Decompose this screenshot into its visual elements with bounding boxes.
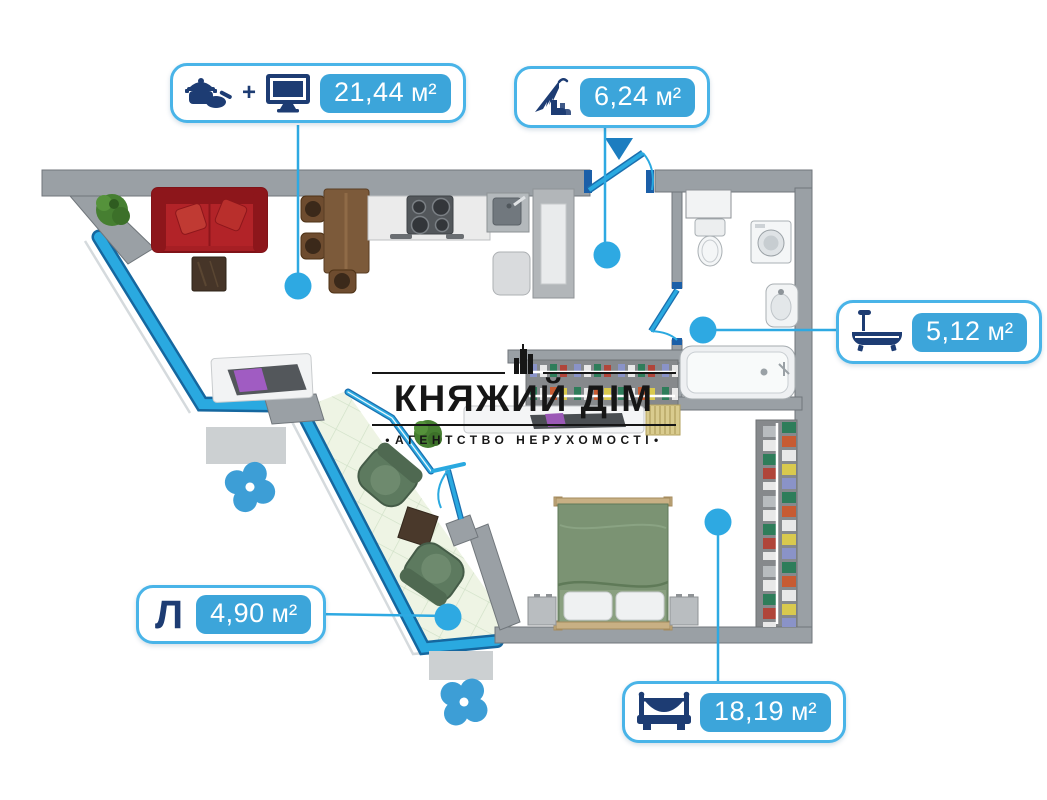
coffee-table: [192, 257, 226, 291]
dining-set: [301, 189, 369, 293]
umbrella-boots-icon: [529, 76, 571, 118]
label-bathroom: 5,12 м²: [836, 300, 1042, 364]
label-hallway: 6,24 м²: [514, 66, 710, 128]
area-unit: м²: [272, 602, 298, 627]
kitchen-counter: [368, 196, 490, 240]
area-unit: м²: [791, 700, 817, 725]
agency-tagline: • АГЕНТСТВО НЕРУХОМОСТІ •: [372, 433, 676, 447]
area-badge: 4,90 м²: [196, 595, 311, 634]
bathtub-icon: [851, 310, 903, 354]
sofa: [152, 188, 267, 252]
fridge: [493, 252, 530, 295]
bed: [554, 497, 672, 630]
bathtub: [680, 346, 795, 399]
area-badge: 6,24 м²: [580, 78, 695, 117]
loggia-letter: Л: [151, 597, 187, 633]
agency-name: КНЯЖИЙ ДІМ: [372, 379, 676, 420]
area-value: 4,90: [210, 600, 265, 627]
label-loggia: Л 4,90 м²: [136, 585, 326, 644]
ac-unit-1: [206, 427, 286, 464]
plant: [96, 194, 130, 226]
divider: [543, 372, 676, 374]
bathroom-door: [651, 282, 682, 345]
bathroom-sink: [766, 284, 798, 327]
agency-watermark: КНЯЖИЙ ДІМ • АГЕНТСТВО НЕРУХОМОСТІ •: [372, 342, 676, 447]
bullet: •: [385, 433, 394, 447]
area-unit: м²: [411, 81, 437, 106]
window-desk: [211, 353, 313, 402]
floor-plan-page: + 21,44 м² 6,24 м² 5,12 м² Л 4,90 м²: [0, 0, 1047, 800]
area-unit: м²: [988, 320, 1014, 345]
area-unit: м²: [656, 85, 682, 110]
balcony-door: [438, 470, 461, 519]
plus-sign: +: [242, 81, 256, 105]
area-badge: 5,12 м²: [912, 313, 1027, 352]
toilet: [695, 219, 725, 266]
area-value: 6,24: [594, 83, 649, 110]
kitchen-sink: [487, 193, 529, 232]
bedroom-wardrobe: [756, 420, 797, 627]
area-badge: 21,44 м²: [320, 74, 451, 113]
watermark-header: [372, 342, 676, 374]
area-value: 18,19: [714, 698, 784, 725]
ventilation-niche: [686, 190, 731, 218]
tagline-text: АГЕНТСТВО НЕРУХОМОСТІ: [395, 433, 653, 447]
bed-icon: [637, 691, 691, 733]
building-icon: [511, 344, 537, 374]
label-kitchen-living: + 21,44 м²: [170, 63, 466, 123]
entrance-arrow-icon: [605, 138, 633, 160]
kitchen-cabinet: [533, 189, 574, 298]
ac-unit-2: [429, 651, 493, 680]
pot-icon: [185, 74, 233, 112]
divider: [372, 372, 505, 374]
bullet: •: [654, 433, 663, 447]
tv-icon: [265, 73, 311, 113]
area-value: 21,44: [334, 79, 404, 106]
area-value: 5,12: [926, 318, 981, 345]
washing-machine: [751, 221, 791, 263]
area-badge: 18,19 м²: [700, 693, 831, 732]
label-bedroom: 18,19 м²: [622, 681, 846, 743]
divider: [372, 424, 676, 426]
